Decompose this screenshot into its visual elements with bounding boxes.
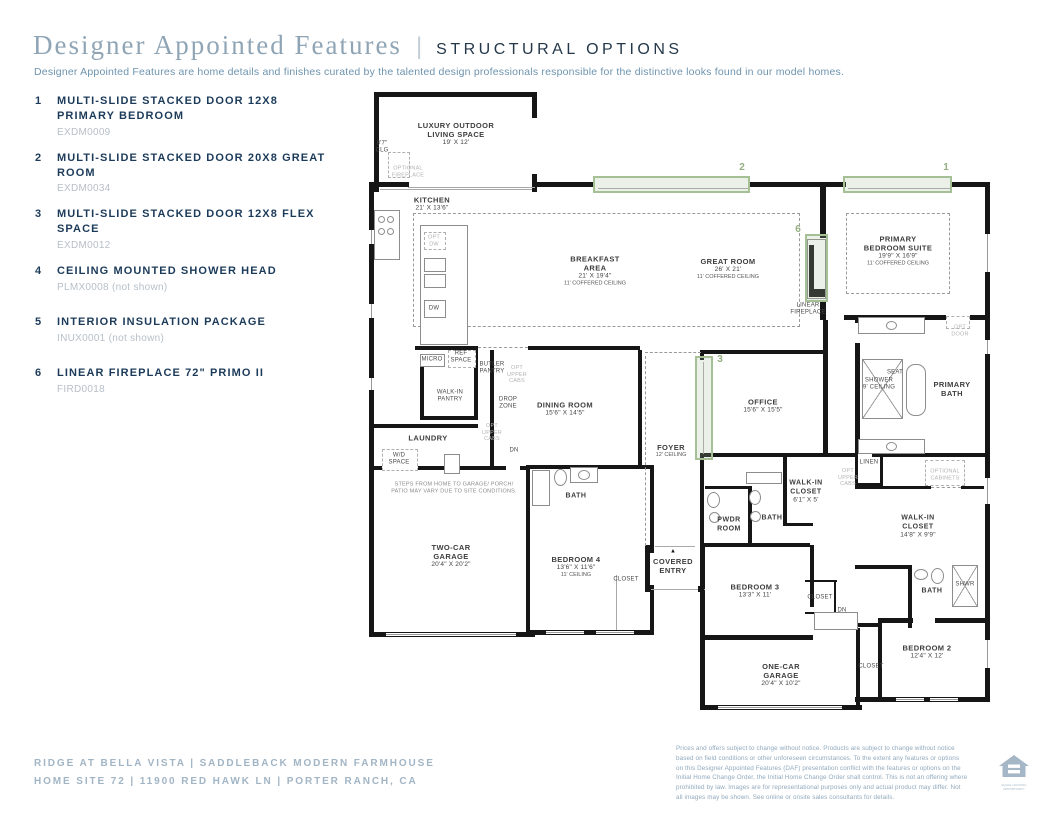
- wall-segment: [369, 424, 478, 428]
- thin-line: [380, 189, 532, 190]
- plan-label-dw: DW: [429, 305, 439, 312]
- wall-segment: [700, 635, 813, 640]
- plan-label-wicprim: WALK-INCLOSET14'8" X 9'9": [900, 515, 936, 540]
- wall-segment: [700, 453, 828, 457]
- feature-number: 4: [35, 264, 57, 293]
- fixture: [749, 490, 761, 505]
- tub-fixture: [906, 364, 926, 416]
- wall-segment: [532, 92, 537, 118]
- option-marker-2: 2: [739, 162, 745, 174]
- plan-label-dn2: DN: [837, 607, 846, 614]
- wall-segment: [855, 486, 931, 489]
- plan-label-seat: SEAT: [887, 369, 903, 376]
- plan-label-bathb4: BATH: [566, 493, 587, 502]
- wall-segment: [420, 366, 424, 420]
- plan-label-dropzone: DROPZONE: [499, 397, 517, 412]
- plan-label-wicsmall: WALK-INCLOSET6'1" X 5': [789, 480, 822, 505]
- feature-number: 1: [35, 94, 57, 138]
- plan-label-shower9: SHOWER9' CEILING: [863, 378, 895, 393]
- fixture: [387, 216, 394, 223]
- plan-label-clg87: 8'7"CLG: [376, 141, 389, 156]
- wall-segment: [528, 346, 640, 350]
- feature-title: MULTI-SLIDE STACKED DOOR 20X8 GREAT ROOM: [57, 151, 329, 181]
- feature-number: 2: [35, 151, 57, 195]
- feature-title: INTERIOR INSULATION PACKAGE: [57, 315, 329, 330]
- fixture: [814, 612, 858, 630]
- plan-label-linfp: LINEARFIREPLACE: [790, 303, 825, 318]
- fixture: [378, 216, 385, 223]
- plan-label-bed2: BEDROOM 212'4" X 12': [902, 643, 951, 660]
- feature-code: EXDM0012: [57, 240, 329, 251]
- plan-label-kitchen: KITCHEN21' X 13'6": [414, 195, 450, 212]
- window: [718, 706, 842, 709]
- option-2-door-highlight: [593, 176, 750, 193]
- wall-segment: [783, 456, 787, 526]
- plan-label-wd: W/DSPACE: [389, 453, 410, 468]
- window: [984, 234, 991, 272]
- wall-segment: [908, 565, 912, 628]
- feature-item-3: 3 MULTI-SLIDE STACKED DOOR 12X8 FLEX SPA…: [35, 207, 335, 251]
- wall-segment: [700, 456, 704, 545]
- fixture: [886, 442, 897, 451]
- wall-opening: [913, 618, 935, 623]
- plan-label-optdoor: OPTDOOR: [951, 324, 968, 337]
- feature-list: 1 MULTI-SLIDE STACKED DOOR 12X8 PRIMARY …: [35, 94, 335, 408]
- plan-label-micro: MICRO: [422, 356, 443, 363]
- plan-label-butler: BUTLERPANTRY: [480, 362, 505, 377]
- feature-title: MULTI-SLIDE STACKED DOOR 12X8 FLEX SPACE: [57, 207, 329, 237]
- page-title: Designer Appointed Features: [33, 30, 402, 61]
- fixture: [746, 472, 782, 484]
- window: [596, 631, 634, 634]
- feature-number: 3: [35, 207, 57, 251]
- feature-title: CEILING MOUNTED SHOWER HEAD: [57, 264, 329, 279]
- dashed-line: [645, 356, 646, 546]
- fixture: [931, 568, 944, 584]
- plan-label-great: GREAT ROOM26' X 21'11' COFFERED CEILING: [697, 257, 759, 281]
- window: [368, 378, 375, 390]
- option-marker-1: 1: [943, 162, 949, 174]
- feature-code: FIRD0018: [57, 384, 329, 395]
- plan-label-linen: LINEN: [860, 459, 879, 466]
- wall-segment: [823, 315, 828, 455]
- plan-label-shwr: SHWR: [955, 581, 974, 588]
- option-marker-3: 3: [717, 354, 723, 366]
- wall-segment: [855, 565, 912, 569]
- feature-code: EXDM0009: [57, 127, 329, 138]
- plan-label-psuite: PRIMARYBEDROOM SUITE19'9" X 16'9"11' COF…: [864, 235, 933, 268]
- window: [546, 631, 584, 634]
- footer-project-info: RIDGE AT BELLA VISTA | SADDLEBACK MODERN…: [34, 755, 435, 791]
- feature-number: 5: [35, 315, 57, 344]
- wall-segment: [834, 580, 836, 614]
- fixture: [378, 228, 385, 235]
- fixture: [914, 569, 928, 580]
- plan-label-bed3: BEDROOM 313'3" X 11': [730, 582, 779, 599]
- wall-segment: [535, 182, 595, 187]
- plan-label-entry: COVEREDENTRY: [653, 557, 693, 575]
- fixture: [424, 258, 446, 272]
- plan-label-closetb4: CLOSET: [613, 576, 638, 583]
- plan-label-bathmid: BATH: [762, 515, 783, 524]
- plan-label-closetb2: CLOSET: [858, 663, 883, 670]
- wall-segment: [700, 545, 705, 589]
- window: [984, 478, 991, 504]
- fixture: [424, 274, 446, 288]
- wall-opening: [826, 315, 844, 320]
- feature-title: LINEAR FIREPLACE 72" PRIMO II: [57, 366, 329, 381]
- thin-line: [408, 187, 535, 188]
- plan-label-arrow: ▲: [670, 548, 676, 555]
- wall-opening: [506, 465, 520, 470]
- wall-segment: [820, 187, 826, 238]
- window: [984, 640, 991, 668]
- wall-segment: [700, 635, 705, 710]
- wall-segment: [650, 465, 654, 553]
- feature-item-4: 4 CEILING MOUNTED SHOWER HEAD PLMX0008 (…: [35, 264, 335, 293]
- thin-line: [655, 546, 695, 547]
- dashed-line: [931, 487, 961, 488]
- plan-label-optcabs3: OPTUPPERCABS: [838, 468, 858, 488]
- wall-segment: [420, 416, 478, 420]
- plan-label-breakfast: BREAKFASTAREA21' X 19'4"11' COFFERED CEI…: [564, 255, 626, 288]
- option-marker-6: 6: [795, 224, 801, 236]
- plan-label-laundry: LAUNDRY: [408, 433, 447, 442]
- feature-code: INUX0001 (not shown): [57, 333, 329, 344]
- wall-segment: [805, 580, 837, 582]
- plan-label-bed4: BEDROOM 413'6" X 11'6"11' CEILING: [551, 555, 600, 579]
- wall-segment: [880, 456, 883, 486]
- plan-label-pwdr: PWDRROOM: [717, 516, 741, 533]
- title-divider: |: [416, 33, 422, 61]
- wall-segment: [374, 92, 537, 97]
- header-description: Designer Appointed Features are home det…: [34, 66, 844, 78]
- wall-segment: [369, 472, 374, 637]
- window: [386, 633, 516, 636]
- plan-label-office: OFFICE15'6" X 15'5": [743, 397, 782, 414]
- plan-label-tcg: TWO-CARGARAGE20'4" X 20'2": [431, 543, 470, 569]
- section-title: STRUCTURAL OPTIONS: [436, 41, 682, 59]
- plan-label-bathb2: BATH: [922, 588, 943, 597]
- plan-label-dining: DINING ROOM15'6" X 14'5": [537, 400, 593, 417]
- plan-label-dn1: DN: [509, 447, 518, 454]
- wall-segment: [783, 523, 813, 526]
- wall-segment: [700, 589, 705, 639]
- floor-plan: LUXURY OUTDOORLIVING SPACE19' X 12'8'7"C…: [368, 88, 995, 748]
- plan-label-outdoor: LUXURY OUTDOORLIVING SPACE19' X 12': [418, 121, 494, 147]
- wall-segment: [526, 465, 530, 635]
- fixture: [750, 511, 761, 522]
- feature-code: PLMX0008 (not shown): [57, 282, 329, 293]
- fixture: [554, 469, 567, 486]
- dashed-line: [478, 347, 528, 348]
- page-header: Designer Appointed Features | STRUCTURAL…: [33, 30, 683, 61]
- wall-segment: [645, 586, 651, 592]
- homesite-address: HOME SITE 72 | 11900 RED HAWK LN | PORTE…: [34, 773, 435, 791]
- wall-segment: [855, 623, 881, 627]
- feature-item-5: 5 INTERIOR INSULATION PACKAGE INUX0001 (…: [35, 315, 335, 344]
- feature-item-6: 6 LINEAR FIREPLACE 72" PRIMO II FIRD0018: [35, 366, 335, 395]
- wall-segment: [700, 543, 810, 547]
- wall-segment: [532, 174, 537, 192]
- plan-label-optdw: OPTDW: [428, 234, 440, 247]
- plan-label-optcabs1: OPTUPPERCABS: [507, 365, 527, 385]
- fixture: [444, 454, 460, 474]
- window: [930, 698, 958, 701]
- equal-housing-house-icon: [999, 755, 1029, 779]
- wall-segment: [705, 486, 750, 489]
- wall-segment: [650, 585, 654, 633]
- wall-segment: [750, 182, 846, 187]
- community-name: RIDGE AT BELLA VISTA | SADDLEBACK MODERN…: [34, 755, 435, 773]
- equal-housing-logo: EQUAL HOUSING OPPORTUNITY: [999, 755, 1029, 792]
- wall-segment: [645, 545, 650, 589]
- plan-label-optcabinets: OPTIONALCABINETS: [930, 468, 959, 481]
- plan-label-pbath: PRIMARYBATH: [933, 380, 970, 398]
- wall-segment: [878, 623, 882, 699]
- fixture: [532, 470, 550, 506]
- option-3-door-highlight: [695, 356, 713, 460]
- window: [368, 304, 375, 318]
- fixture: [578, 470, 590, 480]
- fixture: [387, 228, 394, 235]
- feature-item-2: 2 MULTI-SLIDE STACKED DOOR 20X8 GREAT RO…: [35, 151, 335, 195]
- wall-segment: [638, 350, 642, 468]
- legal-disclaimer: Prices and offers subject to change with…: [676, 744, 968, 803]
- fixture: [707, 492, 720, 508]
- plan-label-ref: REFSPACE: [451, 351, 472, 366]
- plan-label-steps: STEPS FROM HOME TO GARAGE/ PORCH/PATIO M…: [391, 481, 517, 494]
- equal-housing-caption: EQUAL HOUSING OPPORTUNITY: [999, 784, 1029, 792]
- plan-label-ocg: ONE-CARGARAGE20'4" X 10'2": [761, 662, 800, 688]
- plan-label-optfp: OPTIONALFIREPLACE: [392, 165, 424, 178]
- feature-number: 6: [35, 366, 57, 395]
- plan-label-wip: WALK-INPANTRY: [437, 390, 463, 405]
- feature-title: MULTI-SLIDE STACKED DOOR 12X8 PRIMARY BE…: [57, 94, 329, 124]
- thin-line: [650, 589, 705, 590]
- option-6-fireplace-highlight: [805, 234, 828, 302]
- plan-label-closetb3: CLOSET: [807, 594, 832, 601]
- plan-label-optcabs2: OPTUPPERCABS: [482, 423, 502, 443]
- feature-item-1: 1 MULTI-SLIDE STACKED DOOR 12X8 PRIMARY …: [35, 94, 335, 138]
- window: [984, 340, 991, 354]
- feature-code: EXDM0034: [57, 183, 329, 194]
- plan-label-foyer: FOYER12' CEILING: [656, 443, 687, 459]
- fixture: [886, 321, 897, 330]
- option-1-door-highlight: [843, 176, 952, 193]
- wall-segment: [698, 586, 704, 592]
- window: [896, 698, 924, 701]
- dashed-line: [645, 352, 701, 353]
